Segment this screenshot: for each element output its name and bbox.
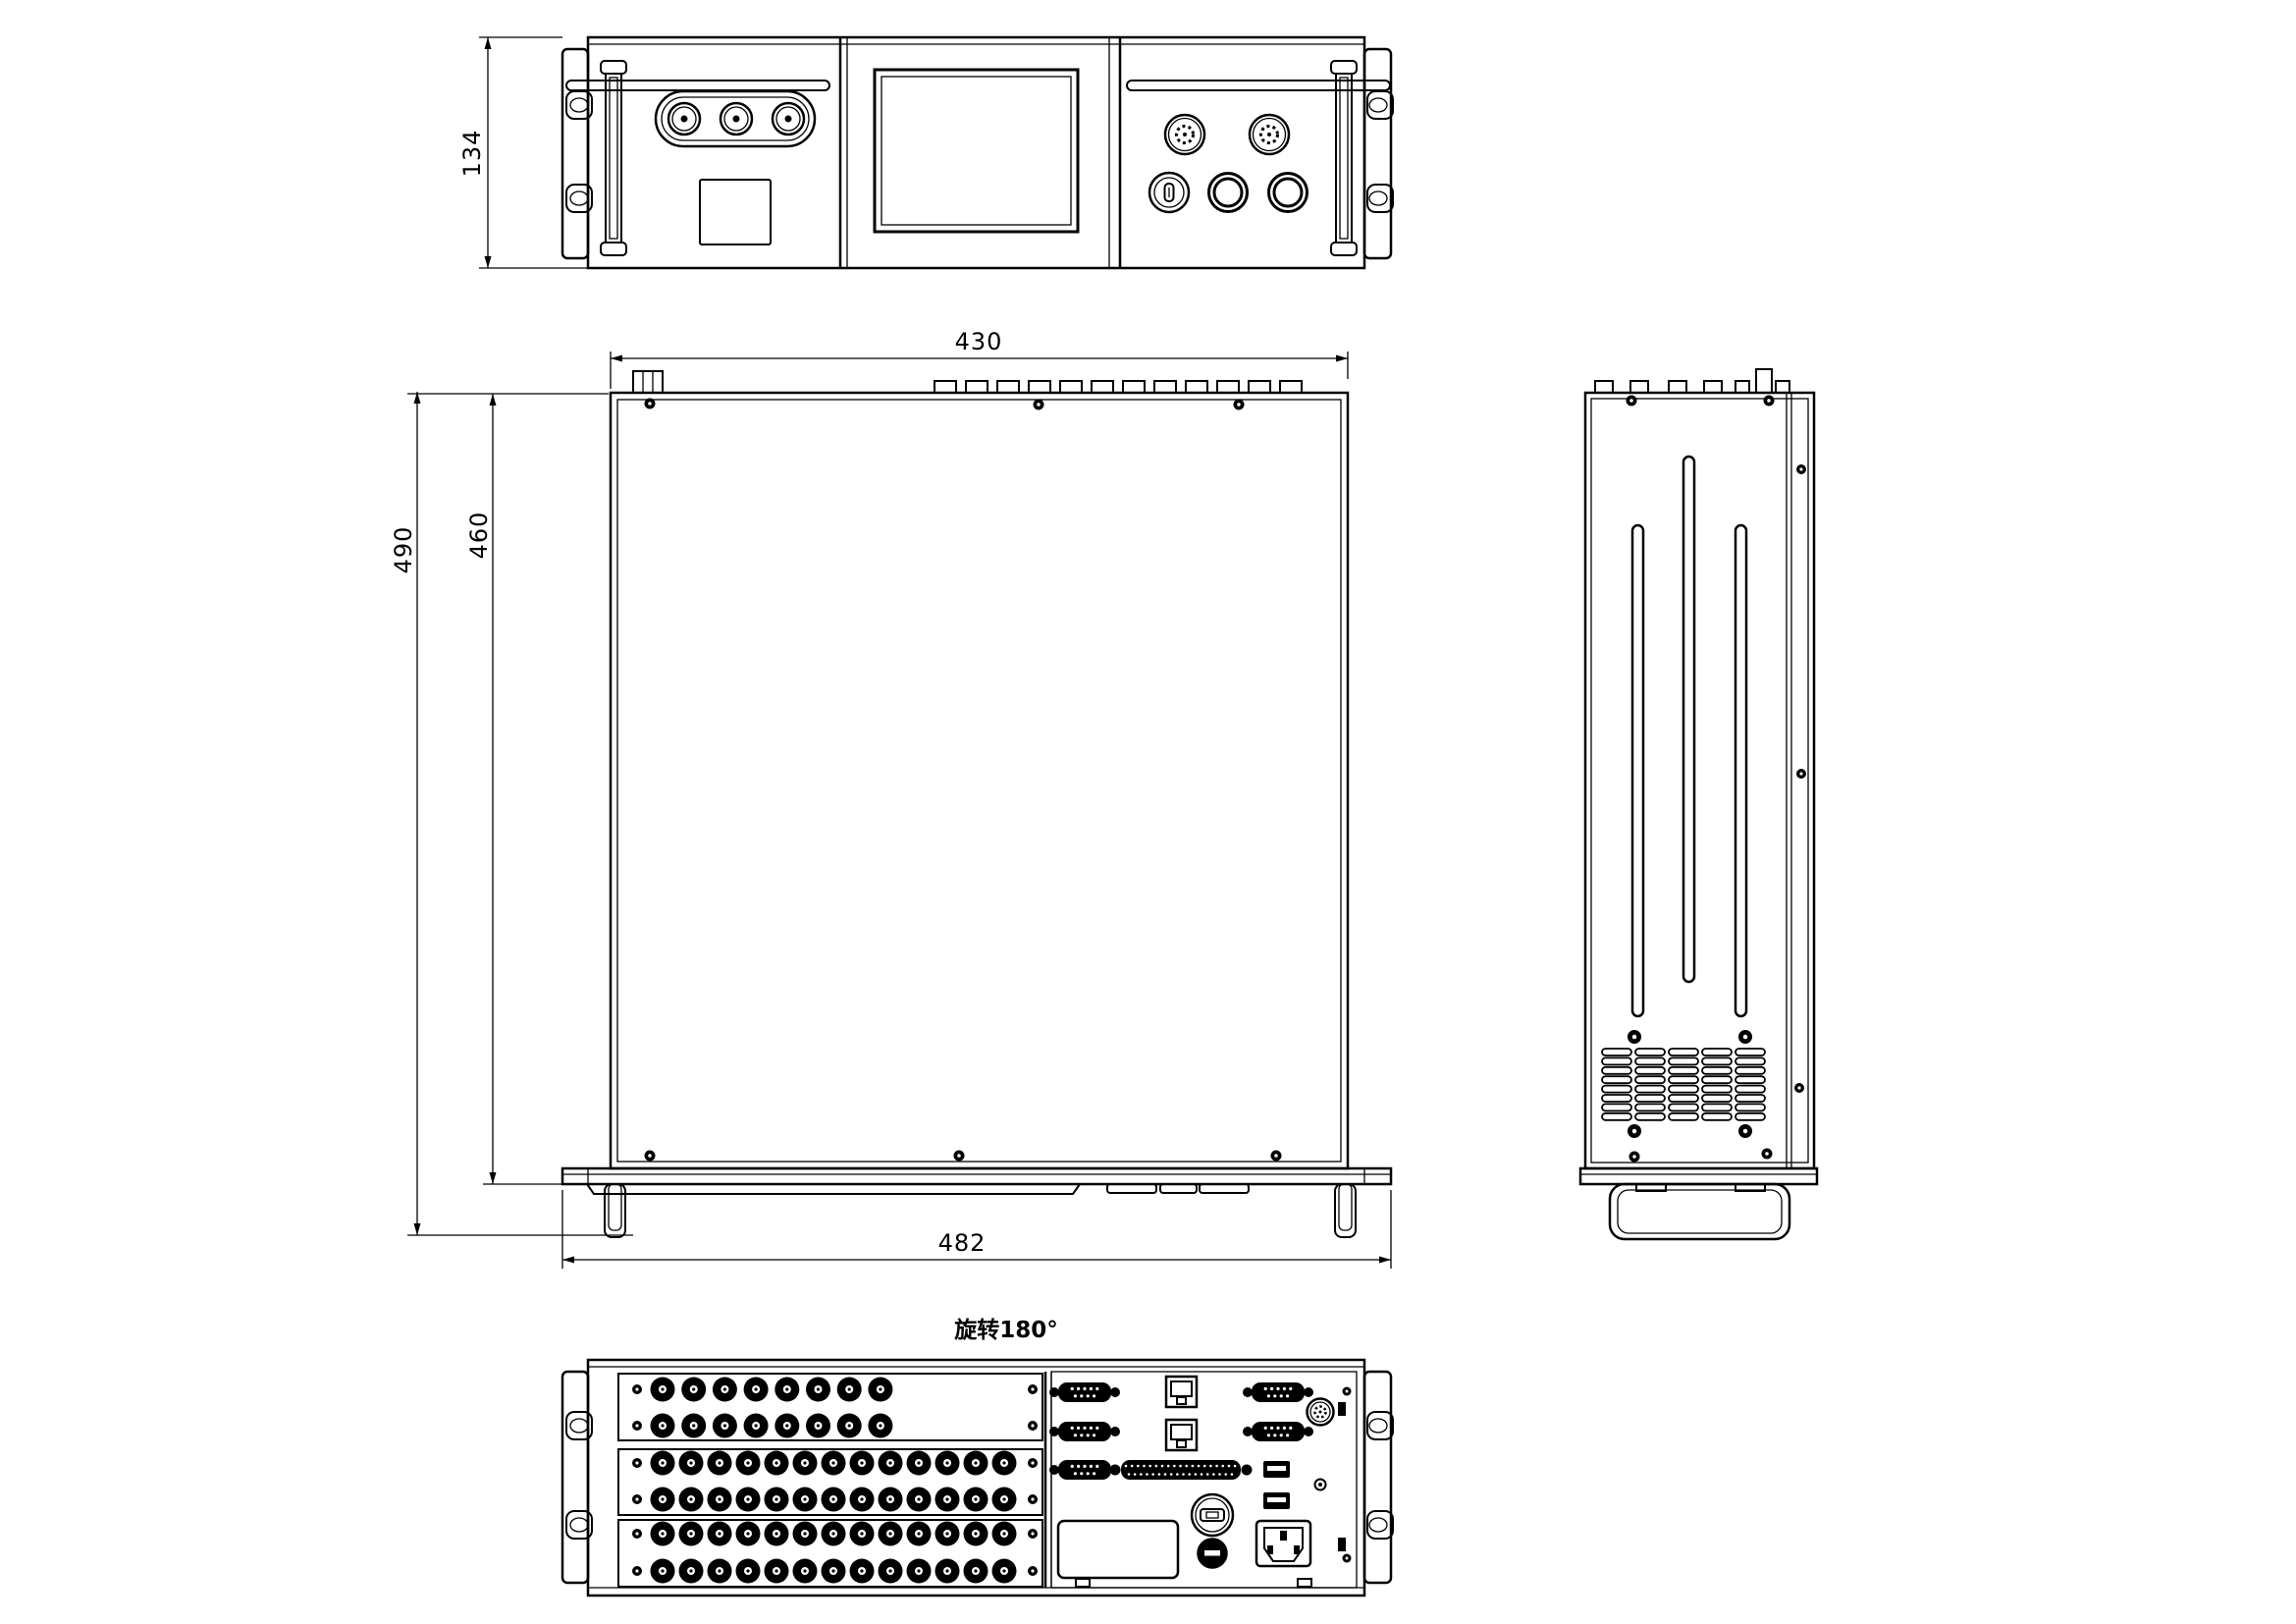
rear-connector-bump [1249,381,1270,393]
side-view [1580,369,1817,1239]
screw-center [1346,1557,1349,1560]
db9-pin [1083,1387,1086,1390]
db9-pin [1267,1394,1270,1397]
bnc-pin [917,1569,920,1572]
db37-pin [1151,1473,1154,1476]
db9-pin [1264,1427,1267,1430]
bnc-pin [692,1387,695,1390]
db9-screw-lobe [1049,1387,1059,1397]
bnc-pin [723,1424,726,1427]
db9-pin [1095,1427,1098,1430]
bnc-pin [803,1461,806,1464]
vent-slot [1635,1095,1665,1102]
db9-body [1252,1382,1305,1402]
bnc-pin [888,1497,891,1500]
db37-pin [1215,1465,1218,1468]
screw-center [635,1461,638,1464]
vent-slot [1702,1067,1732,1074]
db37-pin [1140,1473,1143,1476]
screw-center [1031,1387,1034,1390]
bnc-pin [755,1387,758,1390]
db9-screw-lobe [1110,1387,1120,1397]
rear-terminal-block [633,371,663,393]
bnc-pin [945,1497,948,1500]
db9-pin [1087,1472,1090,1475]
bnc-pin [945,1569,948,1572]
vent-slot [1702,1113,1732,1120]
dim-label-overall-depth: 490 [390,526,417,574]
db9-pin [1071,1465,1074,1468]
vent-slot [1735,1076,1765,1083]
vent-slot [1735,1104,1765,1110]
rear-din-connector [1308,1399,1334,1426]
db9-pin [1077,1387,1080,1390]
db9-connector [1049,1422,1120,1441]
screw-center [1632,1129,1636,1133]
rj45-opening [1171,1381,1192,1396]
chassis-body-top [611,393,1348,1168]
fuse-cap [1199,1540,1227,1568]
rj45-opening [1171,1425,1192,1439]
db37-pin [1125,1465,1128,1468]
screw-center [648,402,652,406]
rj45-tab [1177,1397,1186,1404]
screw-center [1037,403,1041,406]
vent-slot [1669,1049,1698,1056]
db37-pin [1212,1473,1215,1476]
vent-slot [1702,1049,1732,1056]
usb-slot [1267,1497,1286,1502]
rj45-jack [1166,1377,1197,1407]
bnc-pin [817,1424,820,1427]
bnc-pin [746,1569,749,1572]
db37-pin [1228,1465,1231,1468]
db37-pin [1206,1473,1209,1476]
db9-screw-lobe [1243,1427,1253,1436]
bnc-pin [1002,1569,1005,1572]
vent-slot [1635,1067,1665,1074]
db9-pin [1071,1427,1074,1430]
front-round-connectors [1149,173,1308,212]
db9-pin [1270,1427,1273,1430]
bnc-pin [1002,1497,1005,1500]
db9-connector [1243,1422,1313,1441]
db37-pin [1131,1465,1134,1468]
db37-pin [1192,1465,1195,1468]
bnc-pin [689,1461,692,1464]
db9-pin [1280,1434,1283,1436]
vent-slot [1702,1095,1732,1102]
db9-pin [1090,1465,1093,1468]
connector-bump-group [1107,1184,1156,1193]
trim-bar-right [1127,81,1390,90]
bnc-pin [746,1497,749,1500]
carry-handle [1610,1184,1789,1239]
vent-slot [1735,1113,1765,1120]
bnc-pin [974,1532,977,1535]
din-connector-center [1267,133,1271,136]
front-screen [875,70,1078,232]
screw-center [635,1387,638,1390]
db9-pin [1090,1387,1093,1390]
front-face [588,37,1364,268]
screw-center [635,1497,638,1500]
side-rear-bumps [1595,369,1789,393]
db9-screw-lobe [1304,1427,1313,1436]
handle-left-top [605,1184,625,1237]
screw-center [1767,399,1771,403]
bnc-pin [785,1424,788,1427]
vent-slot [1702,1076,1732,1083]
db9-body [1058,1422,1111,1441]
bnc-card-1 [618,1374,1042,1440]
bnc-pin [746,1461,749,1464]
rear-connector-bump [966,381,988,393]
vent-slot [1669,1104,1698,1110]
bnc-pin [689,1569,692,1572]
bnc-pin [692,1424,695,1427]
bnc-pin [774,1532,777,1535]
bnc-pin [661,1532,664,1535]
bnc-pin [945,1461,948,1464]
db37-pin [1170,1473,1173,1476]
db9-pin [1090,1427,1093,1430]
db9-pin [1095,1387,1098,1390]
db9-connector [1049,1460,1120,1480]
screw-center [1031,1532,1034,1535]
edge-tab [1338,1538,1346,1551]
rack-ear-right-rear [1364,1372,1393,1583]
db9-pin [1270,1387,1273,1390]
rear-connector-bump [1217,381,1239,393]
screw-center [1799,772,1802,775]
db37-pin [1128,1473,1131,1476]
rear-connector-bump [1123,381,1145,393]
db37-pin [1148,1465,1151,1468]
bnc-pin [774,1569,777,1572]
db9-screw-lobe [1049,1465,1059,1475]
bnc-pin [917,1497,920,1500]
screw-center [1799,467,1802,470]
screw-center [1237,403,1241,406]
top-view [562,371,1391,1237]
rj45-jack [1166,1420,1197,1450]
db37-pin [1137,1465,1140,1468]
db9-pin [1286,1394,1289,1397]
db37-pin [1176,1473,1179,1476]
vent-slot [1602,1067,1631,1074]
vent-slot [1602,1104,1631,1110]
connector-bump-group [1160,1184,1197,1193]
vent-slot [1669,1067,1698,1074]
screw-center [1031,1461,1034,1464]
rear-connector-bump [1154,381,1176,393]
rear-connector-bump [1092,381,1113,393]
db9-screw-lobe [1110,1427,1120,1436]
bnc-pin [831,1569,834,1572]
screw-center [1743,1035,1747,1039]
db9-pin [1289,1387,1292,1390]
vent-slot [1735,1095,1765,1102]
screw-center [1632,1155,1636,1159]
db9-screw-lobe [1304,1387,1313,1397]
screw-center [1274,1154,1278,1158]
vent-slot [1735,1067,1765,1074]
dimension-460: 460 [465,394,562,1184]
technical-drawing: 134 430 460 490 [0,0,2296,1624]
bnc-pin [860,1569,863,1572]
screw-center [648,1154,652,1158]
screw-center [1031,1497,1034,1500]
bnc-pin [848,1387,851,1390]
bnc-pin [945,1532,948,1535]
db9-pin [1273,1394,1276,1397]
db9-pin [1083,1465,1086,1468]
db9-pin [1286,1434,1289,1436]
db37-pin [1224,1473,1227,1476]
db37-pin [1179,1465,1182,1468]
vent-slot [1602,1113,1631,1120]
db9-pin [1080,1434,1083,1436]
db9-body [1252,1422,1305,1441]
db9-pin [1283,1427,1286,1430]
vent-slot [1702,1086,1732,1093]
vent-slot [1635,1113,1665,1120]
db37-pin [1231,1473,1234,1476]
db37-pin [1158,1473,1161,1476]
db9-pin [1077,1465,1080,1468]
rear-connector-bump [1186,381,1207,393]
dimension-430: 430 [611,328,1348,389]
db37-pin [1185,1465,1188,1468]
db37-pin [1198,1465,1201,1468]
bnc-pin [723,1387,726,1390]
rear-view [562,1360,1393,1596]
bnc-pin [860,1497,863,1500]
handle-right-top [1335,1184,1356,1237]
vent-slot [1635,1049,1665,1056]
db9-pin [1083,1427,1086,1430]
bottom-tab [1076,1579,1090,1587]
rear-connector-bumps [934,381,1302,393]
pill-connector-pin [785,116,792,123]
rear-connector-bump [1280,381,1302,393]
screen-recess [587,1184,1080,1194]
bnc-pin [661,1424,664,1427]
rj45-jacks [1166,1377,1197,1450]
bnc-pin [831,1532,834,1535]
screw-center [635,1569,638,1572]
bottom-tab [1298,1579,1311,1587]
dim-label-body-depth: 460 [465,512,493,560]
usb-ports [1263,1461,1290,1509]
db9-pin [1087,1394,1090,1397]
vent-slot [1735,1057,1765,1064]
db9-pin [1074,1434,1077,1436]
dim-label-overall-width: 482 [938,1229,987,1257]
iec-power-inlet [1256,1521,1310,1566]
bnc-pin [817,1387,820,1390]
screw-center [1629,399,1633,403]
front-view [562,37,1393,268]
rear-connector-bump [1060,381,1082,393]
db9-pin [1093,1394,1095,1397]
db9-pin [1080,1394,1083,1397]
bnc-pin [860,1461,863,1464]
vent-slot [1669,1057,1698,1064]
round-connector-ring [1274,179,1302,206]
rear-connector-bump [934,381,956,393]
bnc-pin [831,1461,834,1464]
db9-pin [1080,1472,1083,1475]
db9-pin [1280,1394,1283,1397]
round-connector-ring [1214,179,1242,206]
screw-center [1346,1390,1349,1393]
pill-connector-pin [733,116,740,123]
front-label-plate [700,180,771,244]
bnc-pin [689,1532,692,1535]
dimension-490: 490 [390,392,633,1235]
db9-pin [1074,1472,1077,1475]
bnc-pin [661,1461,664,1464]
vent-slot [1635,1057,1665,1064]
db9-body [1058,1382,1111,1402]
dim-label-height: 134 [458,130,486,178]
edge-tab [1338,1402,1346,1416]
vent-slot [1669,1086,1698,1093]
db37-pin [1143,1465,1146,1468]
bnc-pin [974,1497,977,1500]
bnc-pin [755,1424,758,1427]
rear-small-hole [1315,1480,1326,1490]
vent-slot [1602,1057,1631,1064]
dim-label-body-width: 430 [955,328,1003,355]
db37-pin [1195,1473,1198,1476]
vent-slot [1602,1086,1631,1093]
bnc-pin [689,1497,692,1500]
fuse-holder [1192,1494,1233,1536]
pill-connector-cluster [656,91,815,146]
bnc-pin [661,1387,664,1390]
bnc-pin [860,1532,863,1535]
front-panel-top-edge [562,1168,1391,1194]
db9-pin [1093,1434,1095,1436]
bnc-pin [661,1569,664,1572]
db37-pin [1209,1465,1212,1468]
db37-pin [1146,1473,1148,1476]
db37-pin [1155,1465,1158,1468]
vent-slot [1669,1095,1698,1102]
db37-pin [1161,1465,1164,1468]
bnc-pin [879,1387,881,1390]
vent-slot [1602,1076,1631,1083]
bnc-pin [879,1424,881,1427]
bnc-pin [661,1497,664,1500]
db37-pin [1167,1465,1170,1468]
rear-connector-bump [997,381,1019,393]
bnc-matrix [651,1378,1017,1584]
bnc-pin [848,1424,851,1427]
din-connector-center [1183,133,1187,136]
vent-slot [1635,1086,1665,1093]
vent-slot [1602,1049,1631,1056]
db37-pin [1173,1465,1176,1468]
bnc-pin [746,1532,749,1535]
bnc-pin [718,1461,721,1464]
vent-slot [1635,1104,1665,1110]
bnc-pin [803,1569,806,1572]
bnc-pin [803,1532,806,1535]
bnc-pin [1002,1461,1005,1464]
rotation-note: 旋转180° [954,1317,1058,1343]
db9-pin [1283,1387,1286,1390]
bnc-pin [803,1497,806,1500]
bnc-pin [888,1461,891,1464]
vent-slot [1669,1113,1698,1120]
db9-pin [1273,1434,1276,1436]
dimension-482: 482 [562,1190,1391,1269]
vent-grille [1602,1049,1765,1120]
screw-center [1632,1035,1636,1039]
screw-center [1765,1152,1769,1156]
db37-pin [1164,1473,1167,1476]
db9-pin [1074,1394,1077,1397]
rj45-tab [1177,1440,1186,1447]
screw-center [635,1532,638,1535]
pill-connector-pin [681,116,688,123]
screw-center [1031,1569,1034,1572]
chassis-body-side [1585,393,1814,1168]
db9-pin [1077,1427,1080,1430]
db37-pin [1218,1473,1221,1476]
db37-pin [1203,1465,1206,1468]
db9-pin [1267,1434,1270,1436]
rear-connector-bump [1029,381,1050,393]
front-din-connectors [1165,115,1289,154]
vent-slot [1702,1057,1732,1064]
connector-bump-group [1200,1184,1249,1193]
db9-pin [1276,1387,1279,1390]
dimension-134: 134 [458,37,588,268]
db9-connector [1243,1382,1313,1402]
screw-center [1031,1424,1034,1427]
bnc-pin [917,1532,920,1535]
db9-screw-lobe [1243,1387,1253,1397]
db37-pin [1182,1473,1185,1476]
db9-pin [1071,1387,1074,1390]
db37-pin [1201,1473,1203,1476]
vent-slot [1735,1049,1765,1056]
bnc-pin [718,1497,721,1500]
vent-slot [1735,1086,1765,1093]
vent-slot [1602,1095,1631,1102]
blank-cover-plate [1058,1521,1178,1578]
db37-connector [1110,1460,1253,1480]
bnc-pin [888,1532,891,1535]
bnc-pin [785,1387,788,1390]
vent-slot [1669,1076,1698,1083]
bnc-pin [718,1569,721,1572]
usb-slot [1267,1466,1286,1471]
db37-pin [1221,1465,1224,1468]
screw-center [635,1424,638,1427]
bnc-pin [1002,1532,1005,1535]
screw-center [1743,1129,1747,1133]
db37-pin [1134,1473,1137,1476]
screw-center [957,1154,961,1158]
bnc-pin [774,1497,777,1500]
db9-screw-lobe [1049,1427,1059,1436]
